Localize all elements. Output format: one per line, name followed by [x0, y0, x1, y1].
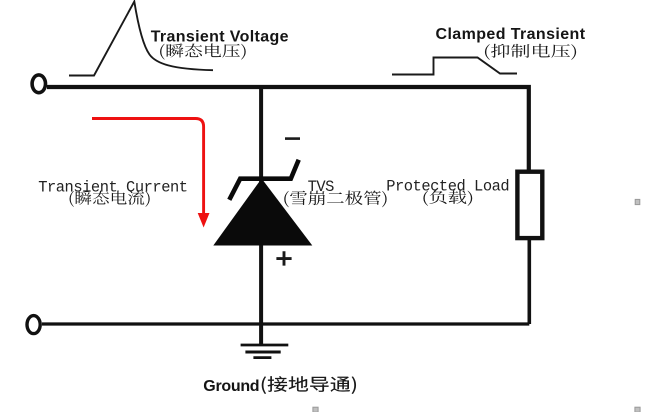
svg-text:Ground: Ground — [203, 378, 259, 395]
svg-text:Clamped Transient: Clamped Transient — [436, 26, 586, 43]
svg-text:Protected Load: Protected Load — [386, 177, 509, 195]
svg-text:TVS: TVS — [308, 178, 335, 196]
svg-text:Transient Voltage: Transient Voltage — [151, 28, 289, 45]
